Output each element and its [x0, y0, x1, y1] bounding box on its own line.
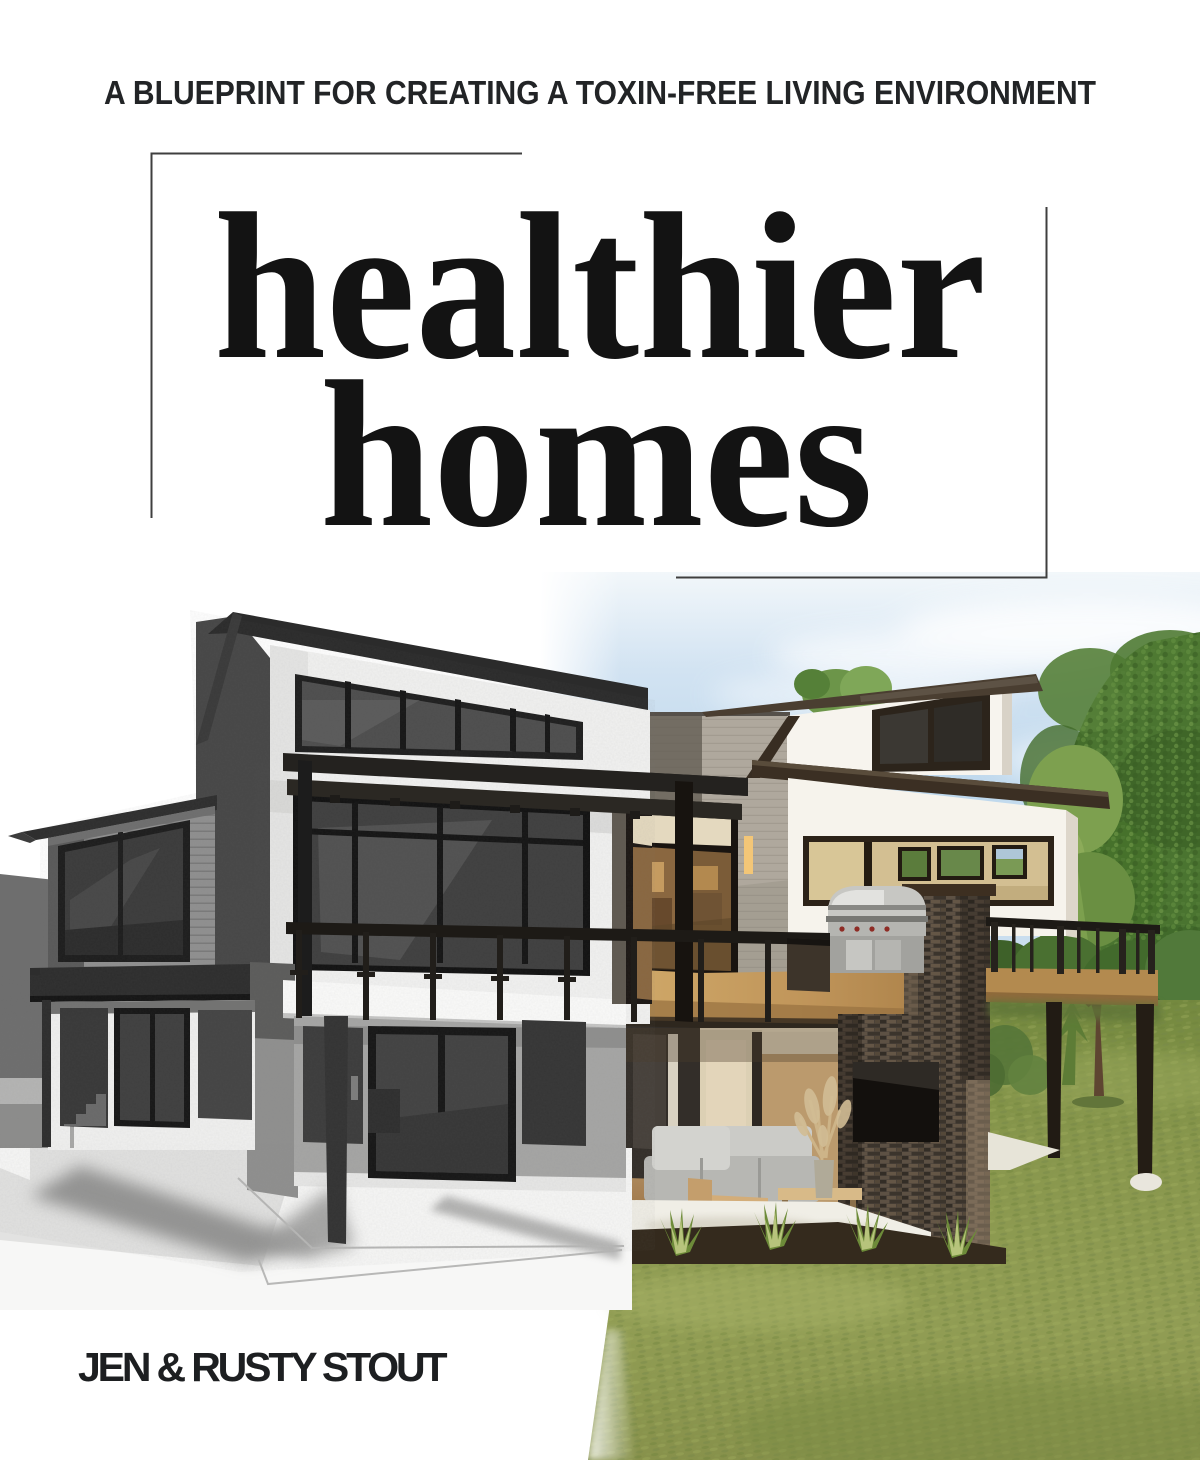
svg-text:A BLUEPRINT FOR CREATING A TOX: A BLUEPRINT FOR CREATING A TOXIN-FREE LI…: [104, 74, 1096, 111]
svg-text:homes: homes: [320, 339, 873, 571]
svg-text:JEN & RUSTY STOUT: JEN & RUSTY STOUT: [78, 1344, 449, 1390]
